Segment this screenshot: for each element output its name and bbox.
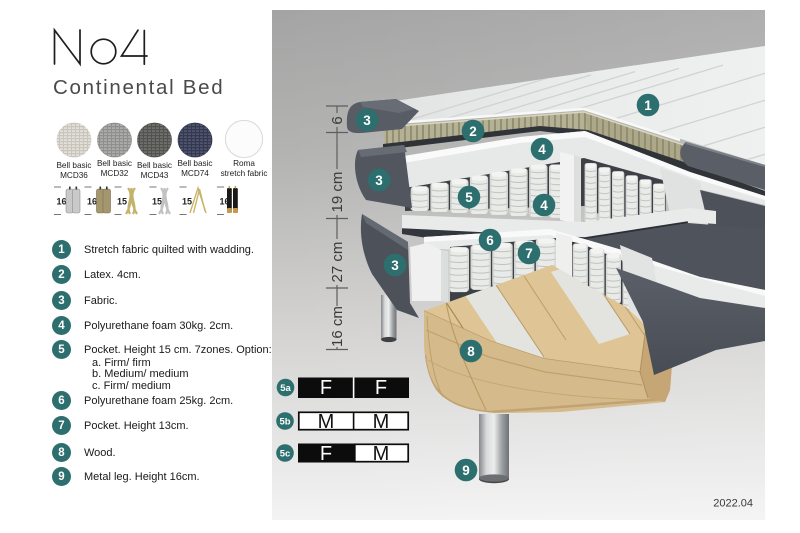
svg-text:2: 2 [469, 124, 477, 139]
svg-text:27 cm: 27 cm [329, 242, 346, 283]
svg-text:F: F [320, 377, 332, 399]
svg-text:F: F [375, 377, 387, 399]
svg-text:M: M [373, 411, 390, 433]
svg-text:5a: 5a [280, 383, 291, 394]
svg-text:4: 4 [540, 198, 548, 213]
svg-text:19 cm: 19 cm [329, 172, 346, 213]
svg-text:M: M [318, 411, 335, 433]
svg-text:9: 9 [462, 463, 470, 478]
svg-text:5b: 5b [279, 416, 290, 427]
svg-text:5c: 5c [280, 448, 291, 459]
svg-text:6: 6 [486, 233, 494, 248]
svg-text:7: 7 [525, 246, 533, 261]
svg-text:M: M [373, 443, 390, 465]
svg-text:6: 6 [329, 116, 346, 124]
svg-text:3: 3 [375, 173, 383, 188]
svg-text:5: 5 [465, 190, 473, 205]
svg-text:F: F [320, 443, 332, 465]
svg-text:1: 1 [644, 98, 652, 113]
svg-text:3: 3 [391, 258, 399, 273]
svg-text:16 cm: 16 cm [329, 306, 346, 347]
svg-text:2022.04: 2022.04 [713, 498, 753, 510]
svg-text:3: 3 [363, 113, 371, 128]
svg-text:4: 4 [538, 142, 546, 157]
svg-text:8: 8 [467, 344, 475, 359]
